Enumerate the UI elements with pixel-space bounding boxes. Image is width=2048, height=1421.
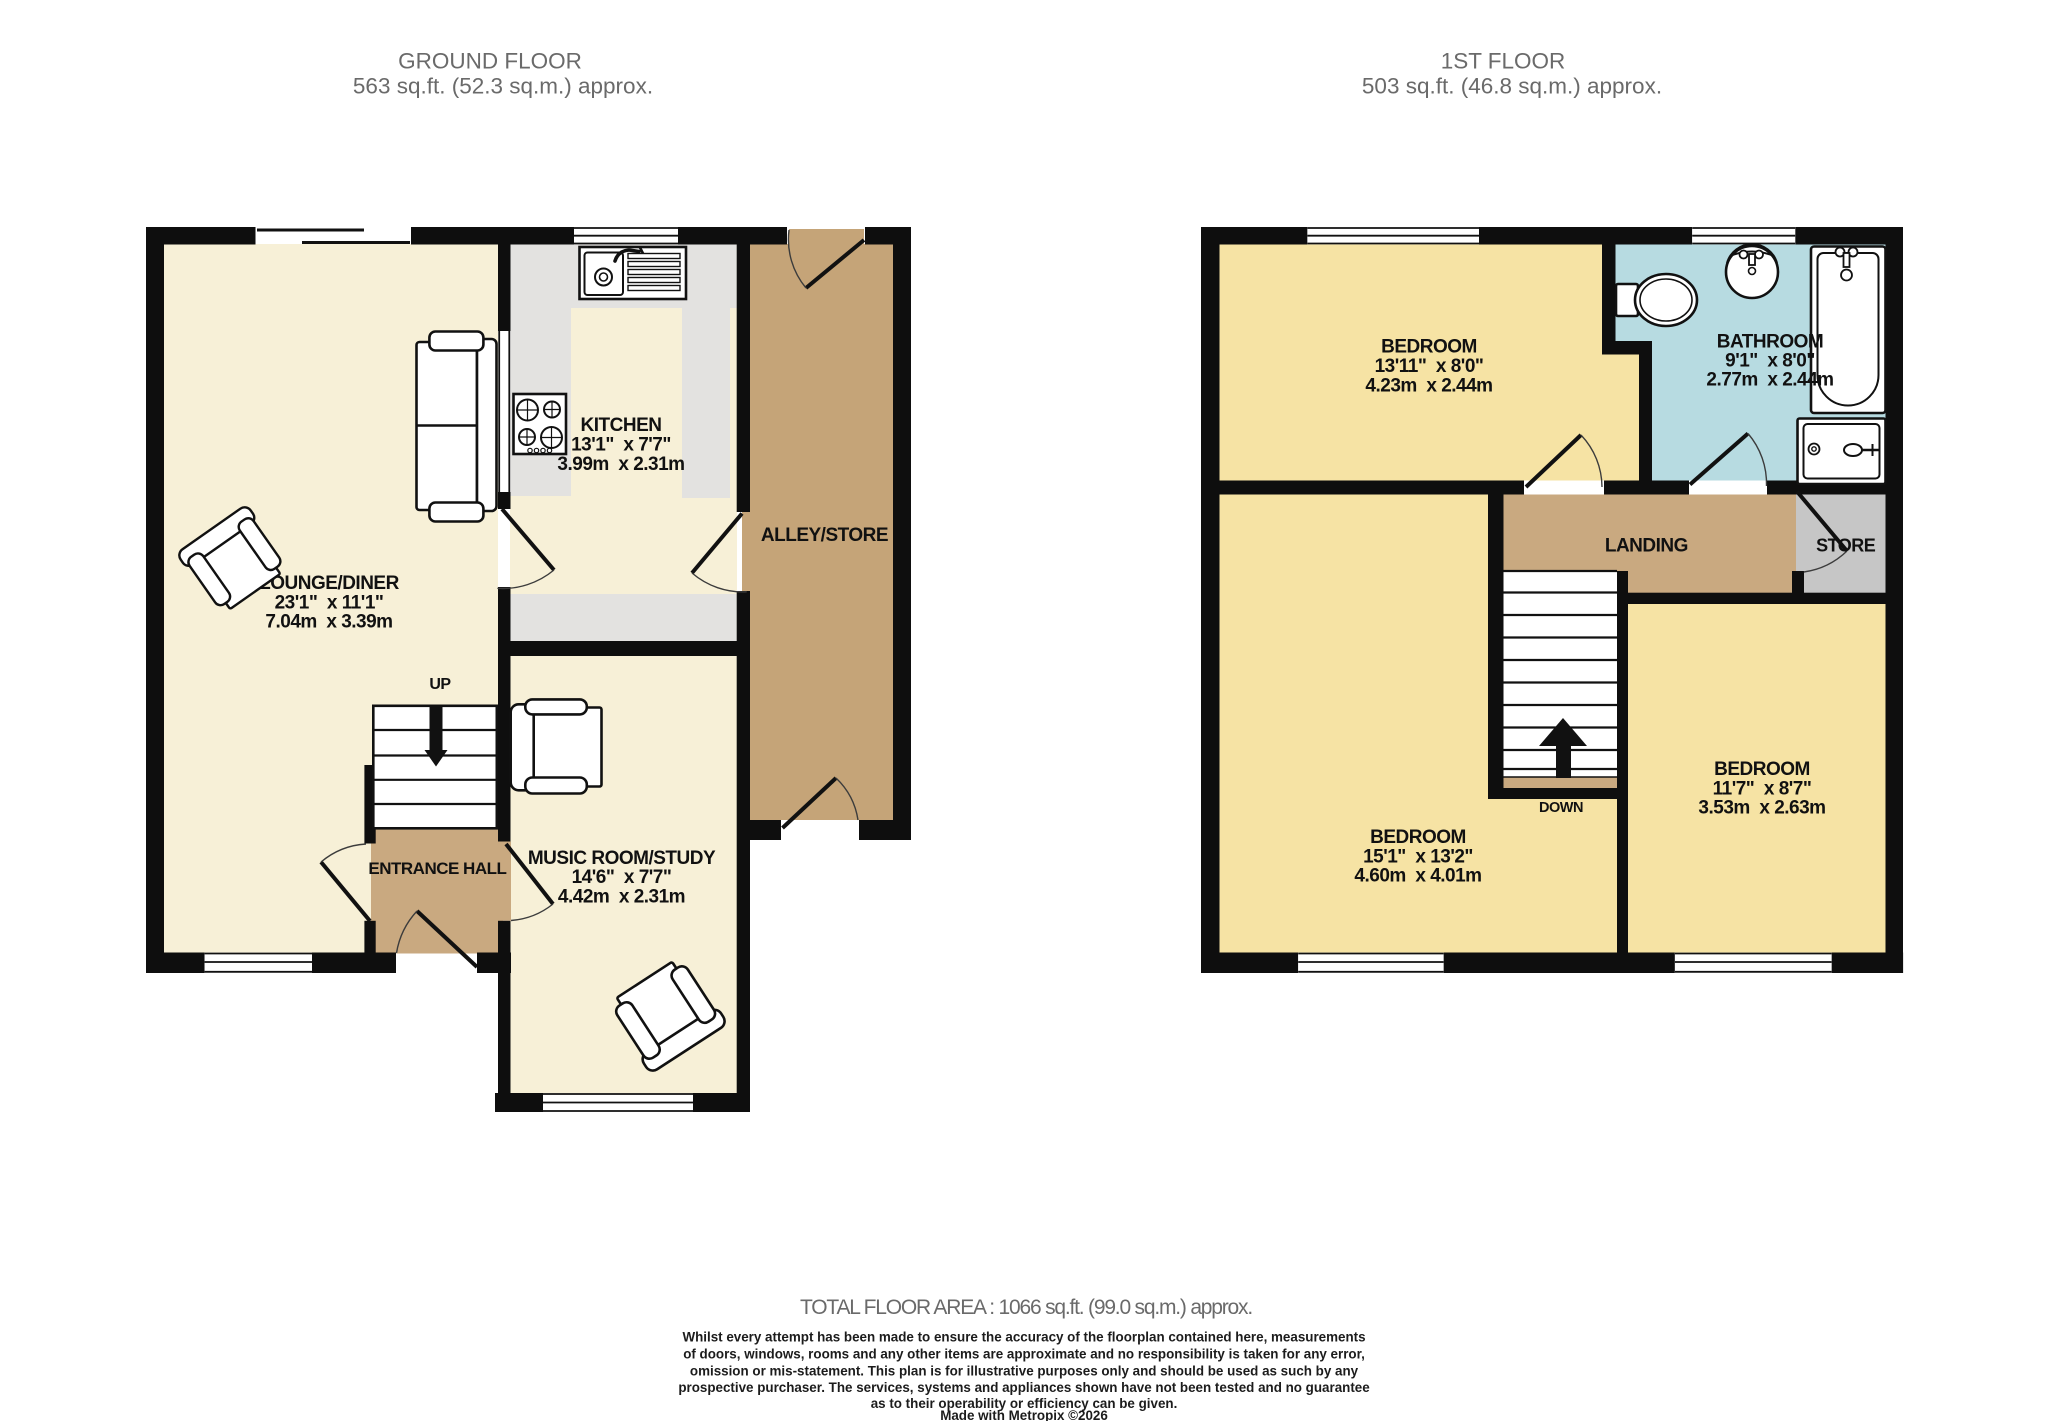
svg-text:TOTAL FLOOR AREA : 1066 sq.ft.: TOTAL FLOOR AREA : 1066 sq.ft. (99.0 sq.… bbox=[800, 1296, 1252, 1319]
svg-text:9'1" x 8'0": 9'1" x 8'0" bbox=[1725, 351, 1815, 372]
svg-text:23'1" x 11'1": 23'1" x 11'1" bbox=[275, 592, 384, 613]
svg-text:LOUNGE/DINER: LOUNGE/DINER bbox=[259, 573, 399, 594]
svg-text:ENTRANCE HALL: ENTRANCE HALL bbox=[368, 859, 506, 878]
svg-text:15'1" x 13'2": 15'1" x 13'2" bbox=[1363, 846, 1473, 867]
svg-text:4.60m x 4.01m: 4.60m x 4.01m bbox=[1354, 866, 1481, 887]
svg-text:of doors, windows, rooms and a: of doors, windows, rooms and any other i… bbox=[683, 1346, 1365, 1361]
svg-text:prospective purchaser. The ser: prospective purchaser. The services, sys… bbox=[678, 1380, 1369, 1395]
svg-text:13'11" x 8'0": 13'11" x 8'0" bbox=[1375, 356, 1484, 377]
svg-text:3.53m x 2.63m: 3.53m x 2.63m bbox=[1698, 798, 1825, 819]
svg-text:7.04m x 3.39m: 7.04m x 3.39m bbox=[265, 612, 392, 633]
svg-text:BATHROOM: BATHROOM bbox=[1717, 332, 1823, 353]
svg-text:13'1" x 7'7": 13'1" x 7'7" bbox=[571, 435, 671, 456]
svg-text:BEDROOM: BEDROOM bbox=[1370, 827, 1466, 848]
svg-text:2.77m x 2.44m: 2.77m x 2.44m bbox=[1706, 370, 1833, 391]
svg-text:14'6" x 7'7": 14'6" x 7'7" bbox=[572, 867, 672, 888]
svg-text:BEDROOM: BEDROOM bbox=[1381, 337, 1477, 358]
svg-text:omission or mis-statement. Thi: omission or mis-statement. This plan is … bbox=[690, 1363, 1359, 1378]
svg-text:Whilst every attempt has been: Whilst every attempt has been made to en… bbox=[682, 1330, 1365, 1345]
svg-text:MUSIC ROOM/STUDY: MUSIC ROOM/STUDY bbox=[528, 848, 716, 869]
svg-text:KITCHEN: KITCHEN bbox=[581, 415, 662, 436]
svg-text:4.42m x 2.31m: 4.42m x 2.31m bbox=[558, 886, 685, 907]
svg-text:DOWN: DOWN bbox=[1539, 800, 1583, 816]
svg-text:503 sq.ft. (46.8 sq.m.) approx: 503 sq.ft. (46.8 sq.m.) approx. bbox=[1362, 74, 1662, 99]
svg-text:11'7" x 8'7": 11'7" x 8'7" bbox=[1713, 778, 1812, 799]
svg-text:STORE: STORE bbox=[1816, 535, 1876, 555]
svg-text:UP: UP bbox=[429, 676, 451, 693]
svg-text:ALLEY/STORE: ALLEY/STORE bbox=[761, 525, 888, 546]
svg-text:BEDROOM: BEDROOM bbox=[1714, 759, 1810, 780]
svg-text:Made with Metropix ©2026: Made with Metropix ©2026 bbox=[940, 1408, 1108, 1421]
svg-text:563 sq.ft. (52.3 sq.m.) approx: 563 sq.ft. (52.3 sq.m.) approx. bbox=[353, 74, 653, 99]
svg-text:4.23m x 2.44m: 4.23m x 2.44m bbox=[1365, 376, 1492, 397]
svg-text:1ST FLOOR: 1ST FLOOR bbox=[1441, 49, 1566, 74]
svg-text:GROUND FLOOR: GROUND FLOOR bbox=[398, 49, 582, 74]
svg-text:3.99m x 2.31m: 3.99m x 2.31m bbox=[557, 454, 684, 475]
svg-text:LANDING: LANDING bbox=[1605, 536, 1688, 557]
